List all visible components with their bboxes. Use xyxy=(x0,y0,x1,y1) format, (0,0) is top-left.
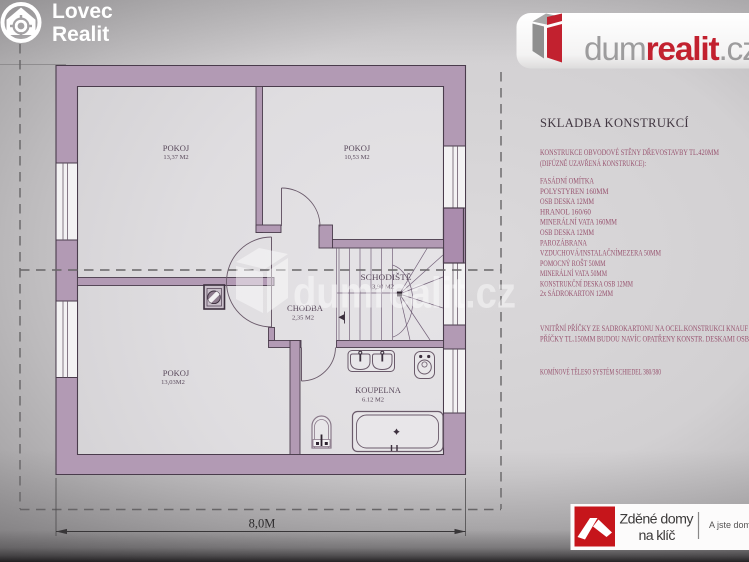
svg-text:HRANOL 160/60: HRANOL 160/60 xyxy=(540,207,591,216)
svg-text:8,0M: 8,0M xyxy=(249,517,276,531)
svg-text:KONSTRUKČNÍ DESKA OSB 12MM: KONSTRUKČNÍ DESKA OSB 12MM xyxy=(540,278,633,288)
svg-text:POKOJ: POKOJ xyxy=(163,368,190,378)
svg-text:dumrealit.cz: dumrealit.cz xyxy=(293,269,516,318)
svg-text:VZDUCHOVÁ/INSTALAČNÍMEZERA 50M: VZDUCHOVÁ/INSTALAČNÍMEZERA 50MM xyxy=(540,248,661,258)
svg-text:(DIFÚZNĚ UZAVŘENÁ KONSTRUKCE):: (DIFÚZNĚ UZAVŘENÁ KONSTRUKCE): xyxy=(540,158,646,168)
svg-text:13,37 M2: 13,37 M2 xyxy=(163,154,188,161)
svg-text:POMOCNÝ ROŠT 50MM: POMOCNÝ ROŠT 50MM xyxy=(540,258,606,268)
svg-text:SKLADBA KONSTRUKCÍ: SKLADBA KONSTRUKCÍ xyxy=(540,116,689,130)
svg-text:13,03M2: 13,03M2 xyxy=(161,379,185,386)
svg-text:PAROZÁBRANA: PAROZÁBRANA xyxy=(540,237,587,247)
svg-text:VNITŘNÍ PŘÍČKY ZE SADROKARTONU: VNITŘNÍ PŘÍČKY ZE SADROKARTONU NA OCEL.K… xyxy=(540,323,748,333)
svg-text:PŘÍČKY TL.150MM BUDOU NAVÍC OP: PŘÍČKY TL.150MM BUDOU NAVÍC OPATŘENY KON… xyxy=(540,334,749,344)
svg-text:OSB DESKA 12MM: OSB DESKA 12MM xyxy=(540,228,594,237)
svg-text:POLYSTYREN 160MM: POLYSTYREN 160MM xyxy=(540,187,609,196)
svg-text:MINERÁLNÍ VATA 50MM: MINERÁLNÍ VATA 50MM xyxy=(540,268,607,278)
svg-text:KONSTRUKCE OBVODOVÉ STĚNY DŘEV: KONSTRUKCE OBVODOVÉ STĚNY DŘEVOSTAVBY TL… xyxy=(540,147,719,157)
svg-text:A jste dom: A jste dom xyxy=(709,520,749,530)
svg-text:KOMÍNOVÉ TĚLESO SYSTÉM SCHIEDE: KOMÍNOVÉ TĚLESO SYSTÉM SCHIEDEL 380/380 xyxy=(540,367,661,377)
svg-text:POKOJ: POKOJ xyxy=(163,143,190,153)
svg-text:KOUPELNA: KOUPELNA xyxy=(355,385,402,395)
svg-text:Zděné domy: Zděné domy xyxy=(620,512,695,528)
svg-text:Realit: Realit xyxy=(52,23,109,46)
svg-text:POKOJ: POKOJ xyxy=(344,143,371,153)
svg-text:10,53 M2: 10,53 M2 xyxy=(344,154,369,161)
svg-text:Lovec: Lovec xyxy=(52,0,113,23)
svg-text:2x SÁDROKARTON 12MM: 2x SÁDROKARTON 12MM xyxy=(540,288,613,298)
svg-text:dumrealit.cz: dumrealit.cz xyxy=(584,31,749,68)
svg-text:OSB DESKA 12MM: OSB DESKA 12MM xyxy=(540,197,594,206)
svg-text:FASÁDNÍ OMÍTKA: FASÁDNÍ OMÍTKA xyxy=(540,176,594,186)
svg-text:na klíč: na klíč xyxy=(639,528,676,544)
svg-text:MINERÁLNÍ VATA 160MM: MINERÁLNÍ VATA 160MM xyxy=(540,217,617,227)
svg-text:6.12 M2: 6.12 M2 xyxy=(362,397,384,404)
